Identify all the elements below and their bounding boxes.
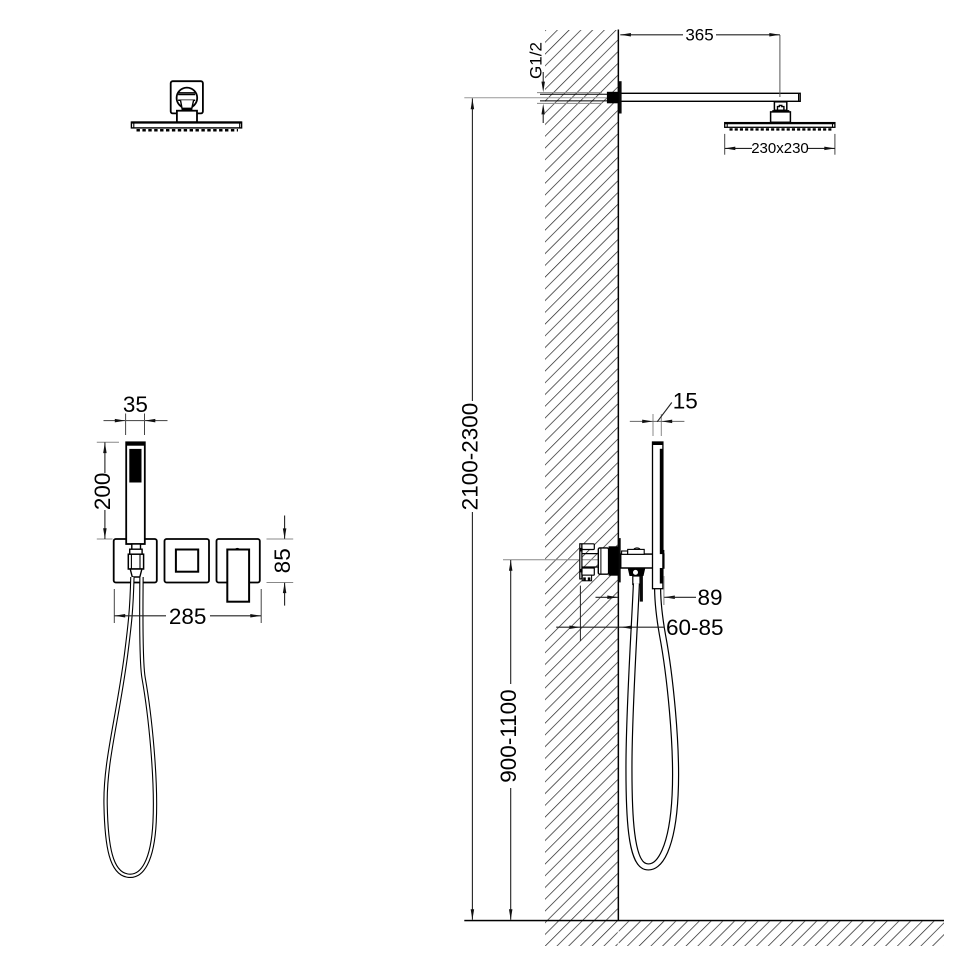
svg-text:85: 85 — [270, 548, 295, 573]
svg-text:15: 15 — [673, 389, 698, 414]
svg-text:230x230: 230x230 — [751, 140, 809, 157]
svg-text:35: 35 — [123, 392, 148, 417]
svg-text:89: 89 — [698, 585, 723, 610]
svg-text:200: 200 — [90, 473, 115, 511]
svg-text:365: 365 — [685, 26, 713, 45]
svg-text:2100-2300: 2100-2300 — [458, 403, 483, 511]
svg-text:285: 285 — [169, 604, 207, 629]
svg-text:900-1100: 900-1100 — [496, 689, 521, 782]
svg-text:60-85: 60-85 — [666, 615, 724, 640]
